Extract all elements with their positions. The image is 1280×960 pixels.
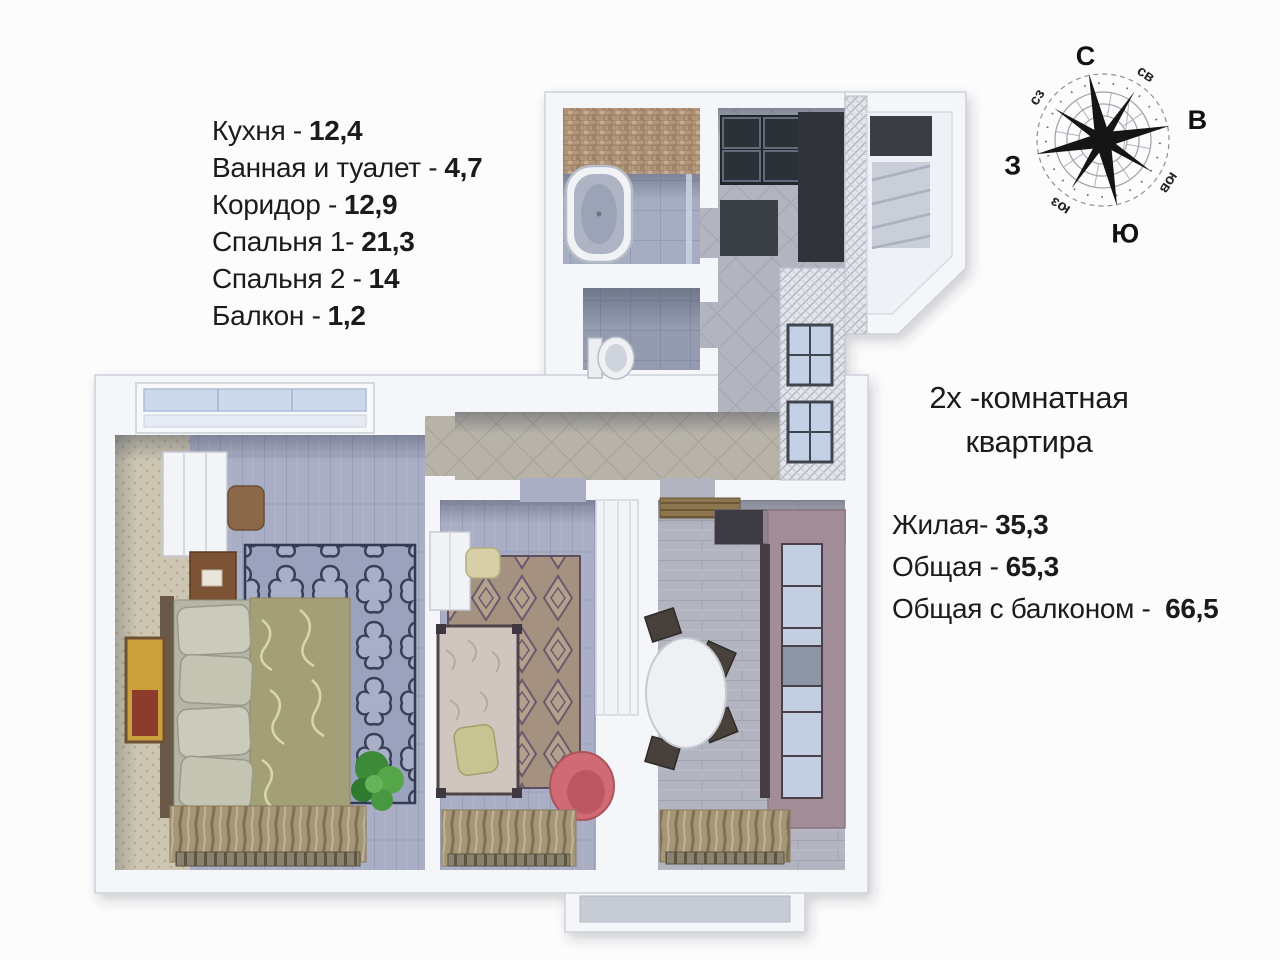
floorplan-page: { "room_list": { "items": [ {"label": "К… [0, 0, 1280, 960]
room-bathroom [563, 108, 700, 264]
radiator [448, 854, 570, 866]
bedroom1-door-opening [425, 416, 455, 476]
balcony-mat [870, 116, 932, 156]
ledge-inner [580, 896, 790, 922]
room-list-item: Ванная и туалет -4,7 [212, 149, 482, 186]
corridor-window [788, 325, 832, 385]
shower-glass [686, 174, 692, 264]
total-value: 35,3 [995, 509, 1048, 540]
compass-label-ne: св [1134, 62, 1158, 86]
total-label: Общая - [892, 551, 999, 582]
room-list-item: Балкон -1,2 [212, 297, 482, 334]
room-label: Спальня 2 - [212, 263, 362, 294]
floor-cushion [466, 548, 500, 578]
room-list-item: Коридор -12,9 [212, 186, 482, 223]
total-item: Общая с балконом - 66,5 [892, 588, 1218, 630]
hall-cabinet-grid [720, 115, 804, 185]
hall-wardrobe [798, 112, 844, 262]
compass-label-n: С [1076, 41, 1096, 71]
room-value: 14 [369, 263, 400, 294]
toilet-door-opening [700, 302, 718, 348]
toilet [588, 337, 634, 379]
bathtub [566, 166, 632, 262]
nightstand [190, 552, 236, 606]
corridor-window [788, 402, 832, 462]
room-label: Коридор - [212, 189, 337, 220]
compass-label-w: З [1004, 150, 1021, 180]
total-item: Жилая-35,3 [892, 504, 1218, 546]
compass-label-s: Ю [1111, 219, 1139, 249]
room-value: 12,9 [344, 189, 397, 220]
room-label: Балкон - [212, 300, 321, 331]
compass-label-sw: юз [1047, 193, 1073, 218]
room-bedroom-1 [115, 383, 455, 870]
radiator [666, 852, 784, 864]
balcony-bench [872, 162, 930, 248]
room-value: 1,2 [328, 300, 366, 331]
wall-picture [126, 638, 164, 742]
desk [430, 532, 470, 610]
single-bed [436, 624, 522, 798]
dining-table [646, 638, 726, 748]
total-value: 66,5 [1165, 593, 1218, 624]
room-value: 12,4 [309, 115, 362, 146]
room-list-item: Спальня 2 -14 [212, 260, 482, 297]
plan-title-line2: квартира [879, 420, 1179, 464]
room-label: Ванная и туалет - [212, 152, 437, 183]
room-area-list: Кухня -12,4 Ванная и туалет -4,7 Коридор… [212, 112, 482, 334]
plan-title-line1: 2х -комнатная [879, 376, 1179, 420]
room-value: 21,3 [361, 226, 414, 257]
bedroom1-window [136, 383, 374, 433]
wardrobe [163, 452, 227, 556]
compass-label-e: В [1188, 105, 1208, 135]
compass-label-nw: сз [1026, 86, 1049, 109]
room-list-item: Спальня 1-21,3 [212, 223, 482, 260]
plan-title: 2х -комнатная квартира [879, 376, 1179, 464]
room-label: Спальня 1- [212, 226, 354, 257]
stool [228, 486, 264, 530]
room-kitchen [645, 478, 845, 870]
total-value: 65,3 [1006, 551, 1059, 582]
pillow [453, 723, 499, 776]
room-value: 4,7 [444, 152, 482, 183]
compass-needles [1022, 59, 1183, 220]
total-label: Общая с балконом - [892, 593, 1158, 624]
room-label: Кухня - [212, 115, 302, 146]
total-label: Жилая- [892, 509, 988, 540]
bathroom-mosaic-wall [563, 108, 700, 174]
total-item: Общая -65,3 [892, 546, 1218, 588]
compass-rose: С В Ю З св юв юз сз [1000, 18, 1230, 258]
room-list-item: Кухня -12,4 [212, 112, 482, 149]
bathroom-door-opening [700, 208, 718, 258]
radiator [176, 852, 360, 866]
hall-dresser [720, 200, 778, 256]
area-totals: Жилая-35,3 Общая -65,3 Общая с балконом … [892, 504, 1218, 630]
double-bed [160, 596, 350, 820]
door-panel [596, 500, 638, 715]
bedroom2-door-opening [520, 478, 586, 502]
room-toilet [583, 288, 700, 379]
hall-floor-mid [718, 270, 780, 414]
